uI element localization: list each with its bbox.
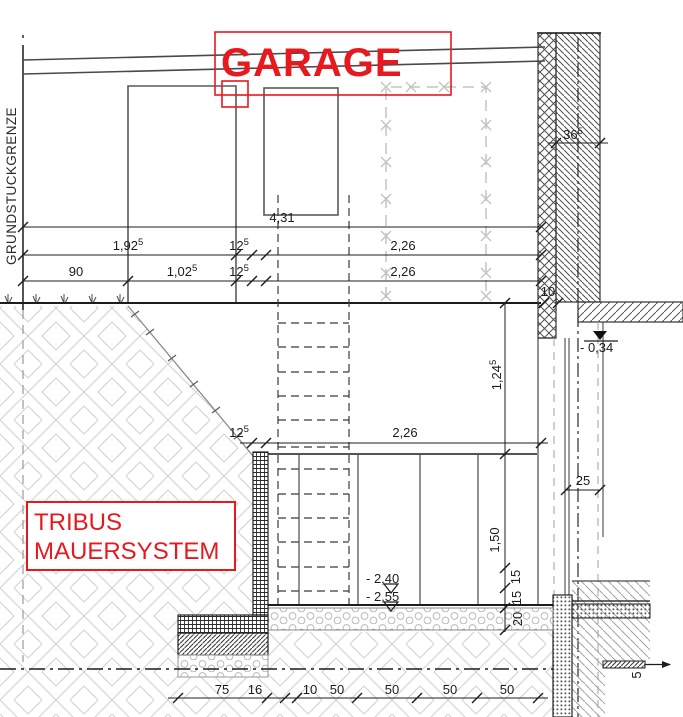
- dim-storey-upper: 1,245: [488, 360, 504, 391]
- neighbour-floor-layer: [572, 604, 650, 618]
- dim-grid-2: 50: [385, 682, 399, 697]
- tribus-label-line2: MAUERSYSTEM: [34, 538, 219, 565]
- dim-pier-upper: 125: [229, 237, 249, 253]
- grass-icon: [117, 294, 124, 303]
- dim-bay-lower: 2,26: [390, 264, 415, 279]
- dim-layer-top: 15: [508, 570, 523, 584]
- grass-icon: [5, 294, 12, 303]
- property-boundary-label: GRUNDSTUCKGRENZE: [4, 107, 19, 265]
- tribus-label-line1: TRIBUS: [34, 509, 122, 536]
- dim-ledge: 25: [576, 473, 590, 488]
- footing-top: [178, 615, 268, 633]
- dim-grid-1: 50: [330, 682, 344, 697]
- dim-wall-base-gap: 10: [541, 284, 555, 299]
- dim-left-offset: 90: [69, 264, 83, 279]
- garage-window-opening: [264, 88, 338, 215]
- dim-pier-lower: 125: [229, 263, 249, 279]
- arrow-icon: [662, 661, 671, 668]
- dim-storey-lower: 1,50: [487, 527, 502, 552]
- dim-footing-width: 75: [215, 682, 229, 697]
- dim-step-height: 5: [629, 671, 644, 678]
- dim-floor-gap: 10: [303, 682, 317, 697]
- tribus-wall: [253, 452, 268, 615]
- footing-gravel: [178, 655, 268, 677]
- dim-layer-mid: 15: [509, 591, 524, 605]
- dim-garage-left: 1,925: [113, 237, 144, 253]
- grass-icon: [33, 294, 40, 303]
- dim-footing-edge: 16: [248, 682, 262, 697]
- dim-layer-bottom: 20: [510, 612, 525, 626]
- level-ground-floor: - 0,34: [580, 340, 613, 355]
- level-marker-icon: [593, 331, 607, 340]
- section-drawing: 4,31 1,925 125 2,26 90 1,025 125 2,26 36…: [0, 0, 683, 717]
- right-wall-group: [537, 33, 683, 717]
- dim-total-width: 4,31: [269, 210, 294, 225]
- grass-icon: [61, 294, 68, 303]
- neighbour-slab: [578, 302, 683, 322]
- footing-block: [178, 633, 268, 655]
- grass-icon: [89, 294, 96, 303]
- stair-outline: [278, 195, 349, 610]
- dim-grid-3: 50: [443, 682, 457, 697]
- dim-bay-upper: 2,26: [390, 238, 415, 253]
- dim-stair-run: 2,26: [392, 425, 417, 440]
- dim-door-width: 1,025: [167, 263, 198, 279]
- dim-stair-wall: 125: [229, 424, 249, 440]
- step-ledge: [603, 661, 645, 668]
- garage-label: GARAGE: [221, 41, 403, 85]
- dim-grid-4: 50: [500, 682, 514, 697]
- basement-outer-wall: [553, 595, 572, 717]
- section-drawing-svg: 4,31 1,925 125 2,26 90 1,025 125 2,26 36…: [0, 0, 683, 717]
